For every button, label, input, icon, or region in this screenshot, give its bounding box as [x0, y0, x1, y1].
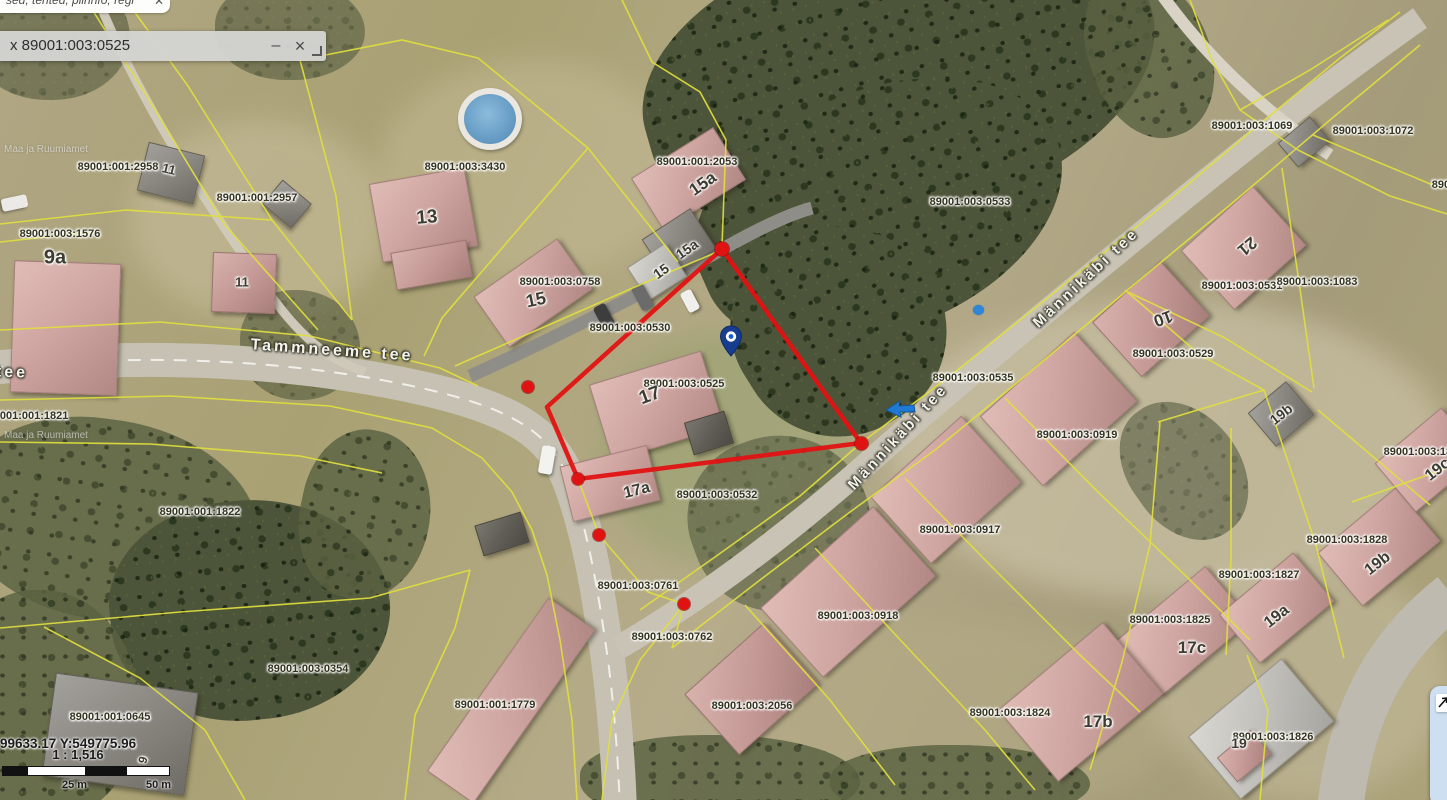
parcel-number-label: 89001:001:2957 [217, 192, 298, 204]
parcel-number-label: 89001:003:2056 [712, 700, 793, 712]
parcel-number-label: 89001:003:0532 [677, 489, 758, 501]
parcel-number-label: 89001:003:1069 [1212, 120, 1293, 132]
cursor-tool-button[interactable] [1436, 694, 1447, 712]
scale-bar [2, 766, 170, 776]
house-number-label: 9a [44, 247, 66, 270]
scale-ratio: 1 : 1,516 [38, 747, 118, 762]
parcel-number-label: 89001:003:1083 [1277, 276, 1358, 288]
scale-tick-50: 50 m [146, 779, 171, 791]
watermark-text: Maa ja Ruumiamet [4, 144, 88, 155]
parcel-number-label: 89001:003:0917 [920, 524, 1001, 536]
parcel-number-label: 89001:003:1576 [20, 228, 101, 240]
parcel-number-label: 89001:003:1072 [1333, 125, 1414, 137]
parcel-number-label: 89001:003:0354 [268, 663, 349, 675]
parcel-number-label: 89001:003:0762 [632, 631, 713, 643]
parcel-popup-titlebar[interactable]: x 89001:003:0525 – × [0, 31, 326, 61]
map-tool-flyout[interactable] [1430, 686, 1447, 800]
blue-point-marker [973, 305, 984, 315]
house-number-label: 13 [416, 206, 439, 230]
map-application: 89001:001:295889001:001:295789001:003:15… [0, 0, 1447, 800]
toolbar-label: sed, tehted, piirinfo, regi [6, 0, 134, 7]
parcel-number-label: 89001:003:0529 [1133, 348, 1214, 360]
parcel-number-label: 89001:001:1822 [160, 506, 241, 518]
parcel-number-label: 89001:001:0645 [70, 711, 151, 723]
house-number-label: 17b [1083, 712, 1112, 732]
parcel-number-label: 89001:003:0919 [1037, 429, 1118, 441]
parcel-number-label: 89001:003:1828 [1307, 534, 1388, 546]
close-button[interactable]: × [290, 34, 310, 58]
house-number-label: 17c [1178, 638, 1206, 658]
house-number-label: 19 [1231, 735, 1247, 751]
minimize-button[interactable]: – [266, 34, 286, 58]
parcel-number-label: 89001:001:2958 [78, 161, 159, 173]
boundary-point-marker [678, 598, 690, 610]
parcel-number-label: 89001:003:0531 [1202, 280, 1283, 292]
top-toolbar[interactable]: sed, tehted, piirinfo, regi ✕ [0, 0, 170, 13]
location-pin-icon [719, 325, 743, 357]
parcel-number-label: 89001:001:1821 [0, 410, 68, 422]
parcel-number-label: 89001:001:2053 [657, 156, 738, 168]
parcel-number-label: 89001:003:0535 [933, 372, 1014, 384]
boundary-point-marker [522, 381, 534, 393]
parcel-number-label: 89001:003:1825 [1130, 614, 1211, 626]
boundary-point-marker [855, 437, 868, 450]
watermark-text: Maa ja Ruumiamet [4, 430, 88, 441]
parcel-number-label: 89001:003:0761 [598, 580, 679, 592]
parcel-number-label: 89001:003:3430 [425, 161, 506, 173]
house-number-label: 11 [235, 275, 249, 290]
arrow-cursor-icon [1436, 694, 1447, 712]
resize-handle-icon[interactable] [312, 46, 322, 56]
boundary-point-marker [593, 529, 605, 541]
close-icon[interactable]: ✕ [154, 0, 164, 8]
scale-tick-25: 25 m [62, 779, 87, 791]
street-name-label: tee [0, 363, 28, 382]
boundary-point-marker [715, 242, 729, 256]
parcel-number-label: 89001:003:1829 [1384, 446, 1447, 458]
parcel-number-label: 89001:003:0758 [520, 276, 601, 288]
parcel-number-label: 89001:003:0918 [818, 610, 899, 622]
boundary-point-marker [572, 473, 584, 485]
popup-title: x 89001:003:0525 [10, 37, 130, 54]
parcel-number-label: 89001:003:0530 [590, 322, 671, 334]
parcel-number-label: 89001:003:1824 [970, 707, 1051, 719]
map-canvas[interactable]: 89001:001:295889001:001:295789001:003:15… [0, 0, 1447, 800]
parcel-number-label: 8900 [1432, 179, 1447, 191]
parcel-number-label: 89001:003:0533 [930, 196, 1011, 208]
parcel-number-label: 89001:001:1779 [455, 699, 536, 711]
house-number-label: 15 [524, 288, 548, 313]
parcel-number-label: 89001:003:1827 [1219, 569, 1300, 581]
